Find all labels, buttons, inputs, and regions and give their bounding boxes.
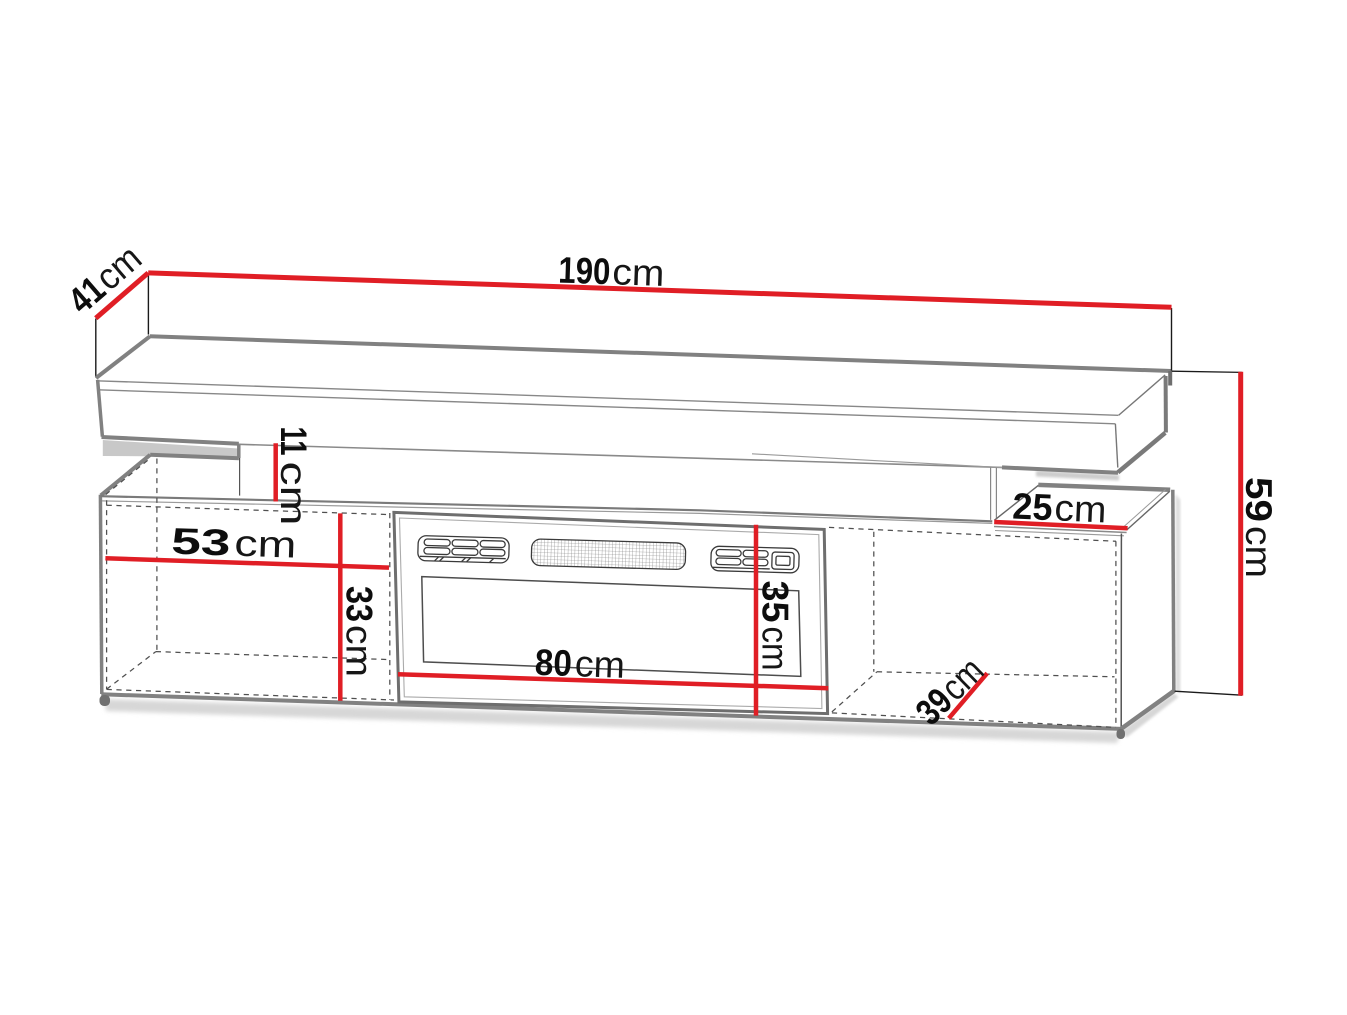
svg-text:25cm: 25cm	[1012, 486, 1108, 531]
svg-text:33cm: 33cm	[339, 586, 380, 677]
svg-text:11cm: 11cm	[273, 427, 314, 526]
svg-text:59cm: 59cm	[1238, 477, 1279, 578]
svg-text:80cm: 80cm	[534, 642, 625, 686]
